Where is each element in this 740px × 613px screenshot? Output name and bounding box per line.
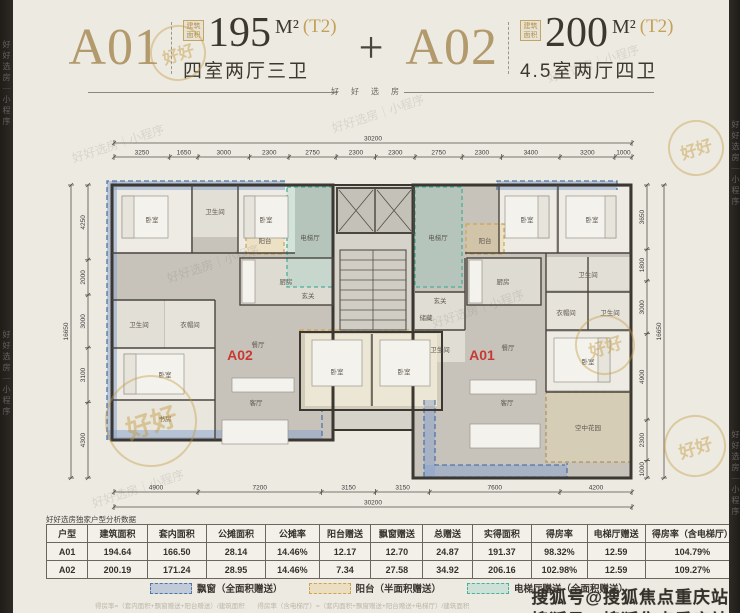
table-header-cell: 实得面积 bbox=[472, 525, 531, 543]
svg-text:卫生间: 卫生间 bbox=[205, 207, 225, 216]
sohu-watermark-clipped: 搜狐号@搜狐焦点重庆站 bbox=[531, 606, 729, 613]
table-cell: 27.58 bbox=[371, 561, 423, 579]
svg-text:3100: 3100 bbox=[80, 367, 87, 382]
table-header-cell: 得房率 bbox=[532, 525, 588, 543]
table-header-cell: 套内面积 bbox=[147, 525, 206, 543]
svg-text:4200: 4200 bbox=[589, 485, 604, 492]
svg-text:1000: 1000 bbox=[639, 462, 646, 477]
table-cell: 206.16 bbox=[472, 561, 531, 579]
svg-text:4900: 4900 bbox=[639, 369, 646, 384]
table-cell: 166.50 bbox=[147, 543, 206, 561]
svg-text:厨房: 厨房 bbox=[280, 277, 293, 286]
svg-text:3400: 3400 bbox=[524, 150, 539, 157]
svg-text:2750: 2750 bbox=[305, 150, 320, 157]
table-header-cell: 总赠送 bbox=[423, 525, 472, 543]
table-cell: 14.46% bbox=[266, 543, 319, 561]
svg-text:2750: 2750 bbox=[431, 150, 446, 157]
svg-text:2300: 2300 bbox=[349, 150, 364, 157]
svg-text:30200: 30200 bbox=[364, 136, 382, 143]
table-cell: A01 bbox=[47, 543, 88, 561]
table-row: A01194.64166.5028.1414.46%12.1712.7024.8… bbox=[47, 543, 740, 561]
svg-text:电梯厅: 电梯厅 bbox=[300, 233, 320, 242]
svg-text:4250: 4250 bbox=[80, 215, 87, 230]
table-cell: 191.37 bbox=[472, 543, 531, 561]
svg-text:卧室: 卧室 bbox=[260, 215, 274, 224]
svg-text:3250: 3250 bbox=[135, 150, 150, 157]
svg-text:阳台: 阳台 bbox=[479, 236, 492, 245]
svg-text:30200: 30200 bbox=[364, 500, 382, 507]
svg-text:1000: 1000 bbox=[616, 150, 631, 157]
svg-text:阳台: 阳台 bbox=[259, 236, 272, 245]
svg-text:3200: 3200 bbox=[580, 150, 595, 157]
table-row: A02200.19171.2428.9514.46%7.3427.5834.92… bbox=[47, 561, 740, 579]
svg-text:1650: 1650 bbox=[177, 150, 192, 157]
svg-text:卧室: 卧室 bbox=[398, 367, 412, 376]
svg-text:2300: 2300 bbox=[475, 150, 490, 157]
legend-label: 飘窗（全面积赠送） bbox=[197, 581, 283, 595]
svg-text:3150: 3150 bbox=[395, 485, 410, 492]
svg-text:3000: 3000 bbox=[639, 300, 646, 315]
svg-text:玄关: 玄关 bbox=[434, 296, 448, 305]
table-header-cell: 得房率（含电梯厅） bbox=[645, 525, 739, 543]
side-watermark: 好好选房｜小程序 bbox=[730, 430, 740, 518]
table-cell: 14.46% bbox=[266, 561, 319, 579]
table-body: A01194.64166.5028.1414.46%12.1712.7024.8… bbox=[47, 543, 740, 579]
table-header-cell: 电梯厅赠送 bbox=[587, 525, 645, 543]
table-cell: 200.19 bbox=[88, 561, 147, 579]
legend-swatch bbox=[150, 583, 192, 594]
table-header-cell: 户型 bbox=[47, 525, 88, 543]
table-header: 户型建筑面积套内面积公摊面积公摊率阳台赠送飘窗赠送总赠送实得面积得房率电梯厅赠送… bbox=[47, 525, 740, 543]
legend-item: 飘窗（全面积赠送） bbox=[150, 581, 283, 595]
svg-text:卧室: 卧室 bbox=[146, 215, 160, 224]
unit-left-badge: A02 bbox=[227, 347, 253, 363]
table-header-cell: 公摊面积 bbox=[206, 525, 265, 543]
table-cell: 104.79% bbox=[645, 543, 739, 561]
left-edge-bar: 好好选房｜小程序 好好选房｜小程序 bbox=[0, 0, 13, 613]
unit-right-badge: A01 bbox=[469, 347, 495, 363]
table-cell: A02 bbox=[47, 561, 88, 579]
sohu-watermark: 搜狐号@搜狐焦点重庆站 bbox=[531, 583, 729, 608]
svg-text:3150: 3150 bbox=[341, 485, 356, 492]
svg-text:2300: 2300 bbox=[639, 433, 646, 448]
table-cell: 171.24 bbox=[147, 561, 206, 579]
table-cell: 12.59 bbox=[587, 543, 645, 561]
svg-text:1800: 1800 bbox=[639, 257, 646, 272]
svg-text:卫生间: 卫生间 bbox=[578, 270, 598, 279]
table-cell: 28.95 bbox=[206, 561, 265, 579]
legend-swatch bbox=[467, 583, 509, 594]
svg-text:7600: 7600 bbox=[488, 485, 503, 492]
table-cell: 109.27% bbox=[645, 561, 739, 579]
svg-text:2300: 2300 bbox=[262, 150, 277, 157]
legend-label: 阳台（半面积赠送） bbox=[356, 581, 442, 595]
table-cell: 12.70 bbox=[371, 543, 423, 561]
analysis-table: 户型建筑面积套内面积公摊面积公摊率阳台赠送飘窗赠送总赠送实得面积得房率电梯厅赠送… bbox=[46, 524, 740, 579]
table-header-cell: 公摊率 bbox=[266, 525, 319, 543]
svg-text:2300: 2300 bbox=[388, 150, 403, 157]
svg-text:16650: 16650 bbox=[656, 322, 663, 340]
svg-text:客厅: 客厅 bbox=[250, 398, 264, 407]
table-cell: 102.98% bbox=[532, 561, 588, 579]
legend-swatch bbox=[309, 583, 351, 594]
table-cell: 12.17 bbox=[319, 543, 371, 561]
svg-text:卧室: 卧室 bbox=[521, 215, 535, 224]
svg-text:餐厅: 餐厅 bbox=[252, 340, 266, 349]
legend-item: 阳台（半面积赠送） bbox=[309, 581, 442, 595]
svg-text:餐厅: 餐厅 bbox=[502, 343, 516, 352]
svg-text:16650: 16650 bbox=[63, 322, 70, 340]
svg-text:2000: 2000 bbox=[80, 270, 87, 285]
table-cell: 12.59 bbox=[587, 561, 645, 579]
svg-text:4300: 4300 bbox=[80, 433, 87, 448]
svg-text:3650: 3650 bbox=[639, 210, 646, 225]
table-header-cell: 飘窗赠送 bbox=[371, 525, 423, 543]
svg-text:电梯厅: 电梯厅 bbox=[428, 233, 448, 242]
side-watermark: 好好选房｜小程序 bbox=[730, 120, 740, 208]
table-cell: 98.32% bbox=[532, 543, 588, 561]
table-cell: 34.92 bbox=[423, 561, 472, 579]
svg-text:卧室: 卧室 bbox=[586, 215, 600, 224]
side-watermark: 好好选房｜小程序 bbox=[1, 40, 12, 128]
svg-text:客厅: 客厅 bbox=[501, 398, 515, 407]
side-watermark: 好好选房｜小程序 bbox=[1, 330, 12, 418]
svg-text:3000: 3000 bbox=[217, 150, 232, 157]
svg-text:卫生间: 卫生间 bbox=[129, 320, 149, 329]
svg-text:玄关: 玄关 bbox=[302, 291, 316, 300]
table-cell: 194.64 bbox=[88, 543, 147, 561]
table-cell: 24.87 bbox=[423, 543, 472, 561]
svg-text:衣帽间: 衣帽间 bbox=[180, 320, 200, 329]
svg-text:衣帽间: 衣帽间 bbox=[556, 308, 576, 317]
table-header-cell: 阳台赠送 bbox=[319, 525, 371, 543]
svg-text:空中花园: 空中花园 bbox=[575, 423, 601, 432]
svg-text:卧室: 卧室 bbox=[331, 367, 345, 376]
page: 好好选房｜小程序 好好选房｜小程序 好好选房｜小程序 好好选房｜小程序 A01 … bbox=[0, 0, 740, 613]
svg-text:7200: 7200 bbox=[253, 485, 268, 492]
right-edge-bar: 好好选房｜小程序 好好选房｜小程序 bbox=[729, 0, 740, 613]
svg-text:卫生间: 卫生间 bbox=[430, 345, 450, 354]
table-cell: 7.34 bbox=[319, 561, 371, 579]
svg-text:厨房: 厨房 bbox=[497, 277, 510, 286]
table-cell: 28.14 bbox=[206, 543, 265, 561]
table-header-cell: 建筑面积 bbox=[88, 525, 147, 543]
svg-text:3000: 3000 bbox=[80, 314, 87, 329]
